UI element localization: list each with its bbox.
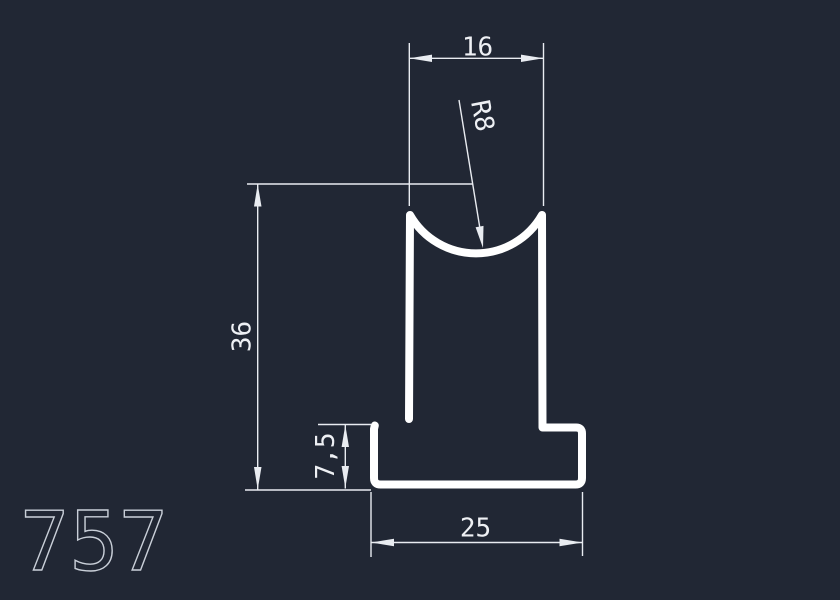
dim-top-radius: R8	[459, 98, 500, 248]
dim-overall-height: 36	[228, 184, 473, 490]
dimension-label-base-width: 25	[460, 514, 491, 544]
arrowhead-up	[254, 184, 262, 207]
dim-base-width: 25	[371, 492, 583, 557]
arrowhead-right	[521, 55, 544, 62]
dimension-label-overall-height: 36	[228, 321, 258, 352]
cad-drawing-area: 16 R8 36 7,5	[0, 0, 840, 600]
dimension-label-radius: R8	[464, 98, 499, 134]
dimension-label-top-width: 16	[462, 33, 493, 63]
arrowhead-left	[371, 539, 394, 546]
profile-outline	[374, 215, 582, 485]
arrowhead-down	[254, 467, 262, 490]
arrowhead-left	[409, 55, 432, 62]
part-number: 757	[20, 495, 168, 590]
leader-arrowhead	[476, 226, 484, 248]
arrowhead-up	[342, 425, 349, 447]
dim-flange-height: 7,5	[311, 425, 371, 489]
arrowhead-down	[342, 466, 349, 488]
cad-viewport: 16 R8 36 7,5	[0, 0, 840, 600]
dimension-label-flange-height: 7,5	[311, 433, 341, 480]
arrowhead-right	[560, 539, 583, 546]
